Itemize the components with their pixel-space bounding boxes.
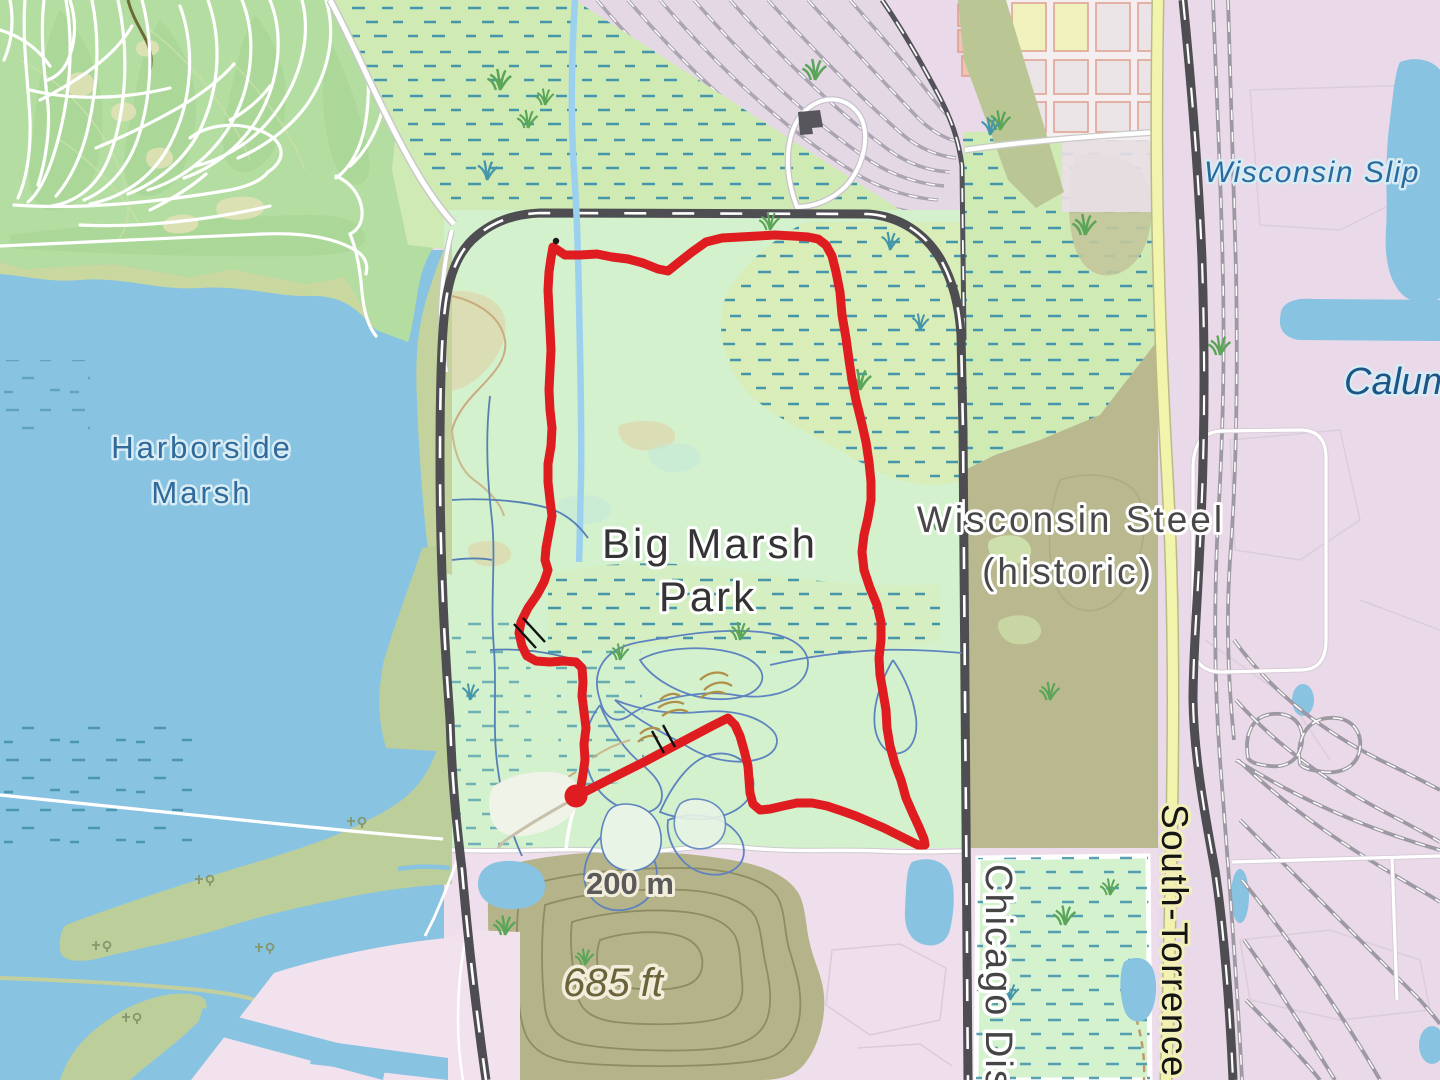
svg-text:Harborside: Harborside (111, 430, 293, 465)
svg-text:685 ft: 685 ft (563, 961, 665, 1005)
svg-text:South-Torrence: South-Torrence (1154, 804, 1195, 1078)
svg-text:Park: Park (659, 573, 757, 620)
svg-text:Chicago District: Chicago District (977, 864, 1019, 1080)
svg-text:(historic): (historic) (982, 551, 1154, 592)
svg-text:Calumet: Calumet (1344, 361, 1440, 403)
svg-text:Wisconsin Slip: Wisconsin Slip (1204, 156, 1420, 189)
svg-text:200 m: 200 m (586, 866, 674, 901)
svg-text:Wisconsin Steel: Wisconsin Steel (917, 499, 1225, 540)
svg-text:Big Marsh: Big Marsh (602, 520, 818, 567)
svg-text:Marsh: Marsh (151, 475, 252, 510)
